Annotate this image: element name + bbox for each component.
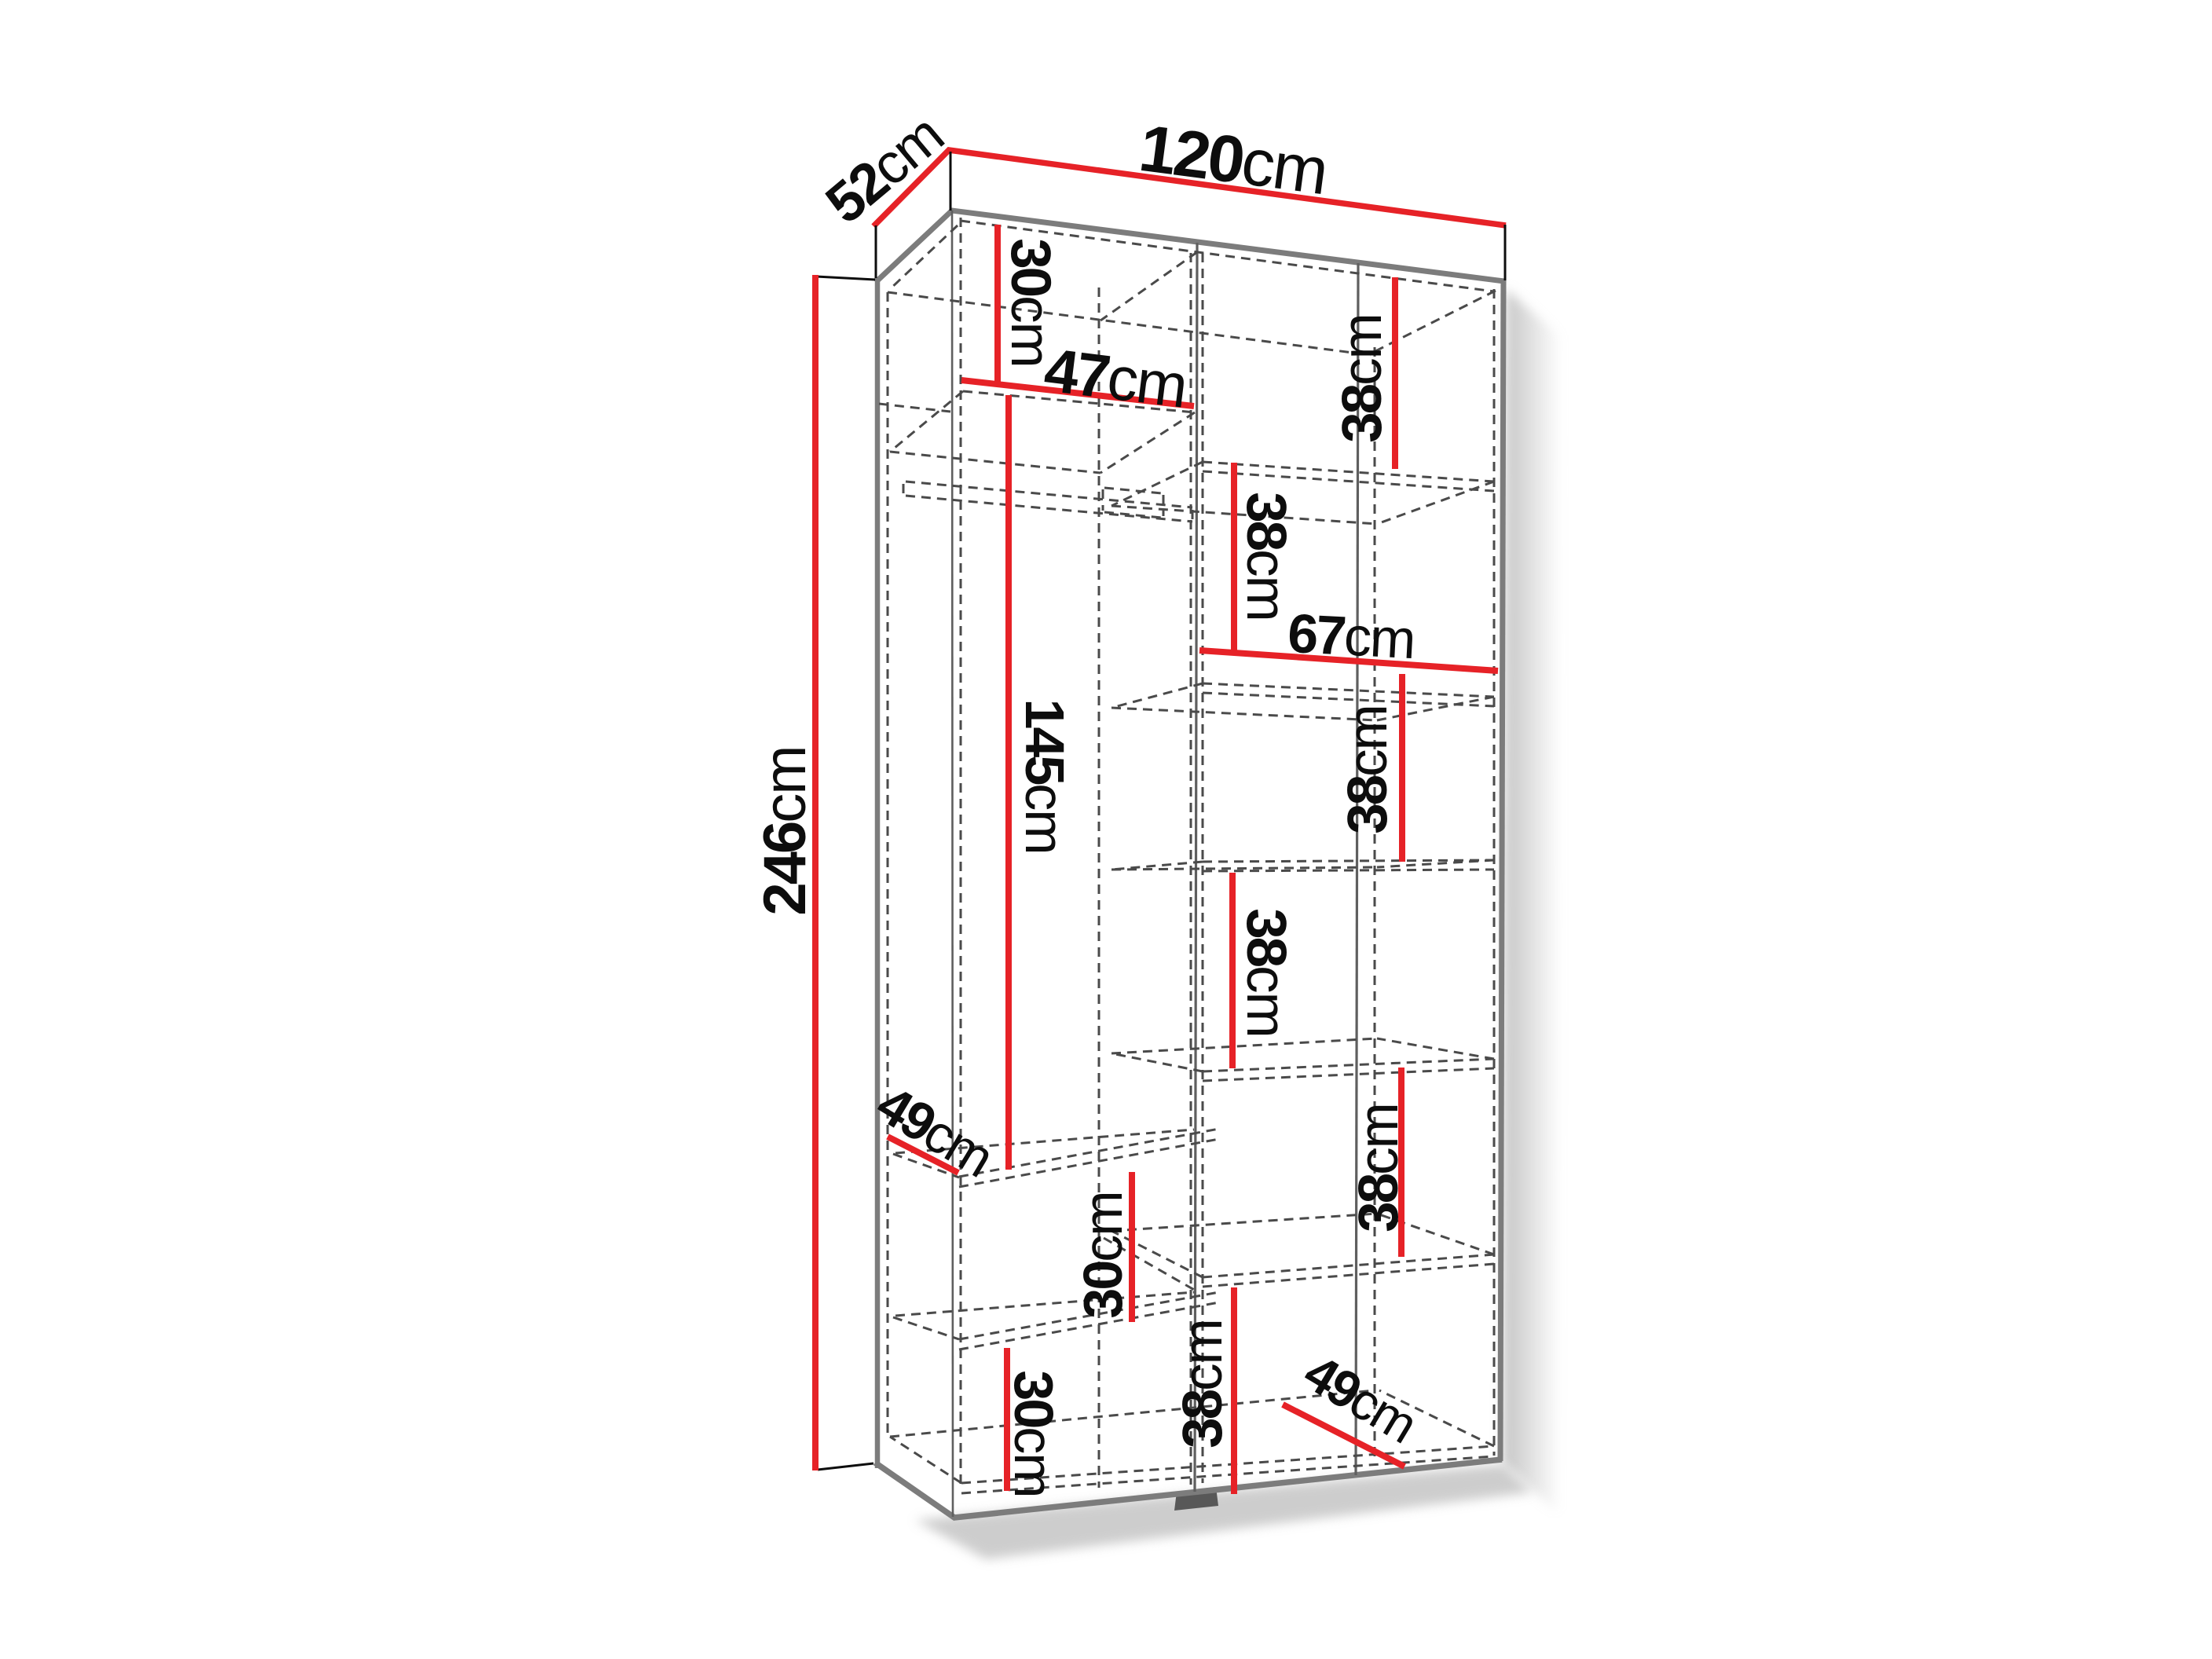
svg-text:145cm: 145cm bbox=[1014, 698, 1075, 853]
svg-text:38cm: 38cm bbox=[1331, 314, 1393, 443]
svg-text:38cm: 38cm bbox=[1337, 705, 1399, 834]
svg-text:246cm: 246cm bbox=[752, 746, 819, 915]
svg-text:30cm: 30cm bbox=[1072, 1192, 1133, 1318]
svg-text:67cm: 67cm bbox=[1286, 602, 1415, 670]
svg-text:38cm: 38cm bbox=[1348, 1104, 1410, 1232]
svg-text:38cm: 38cm bbox=[1172, 1320, 1234, 1448]
svg-text:30cm: 30cm bbox=[1003, 1370, 1064, 1496]
svg-text:38cm: 38cm bbox=[1236, 492, 1298, 621]
svg-text:38cm: 38cm bbox=[1236, 908, 1298, 1037]
